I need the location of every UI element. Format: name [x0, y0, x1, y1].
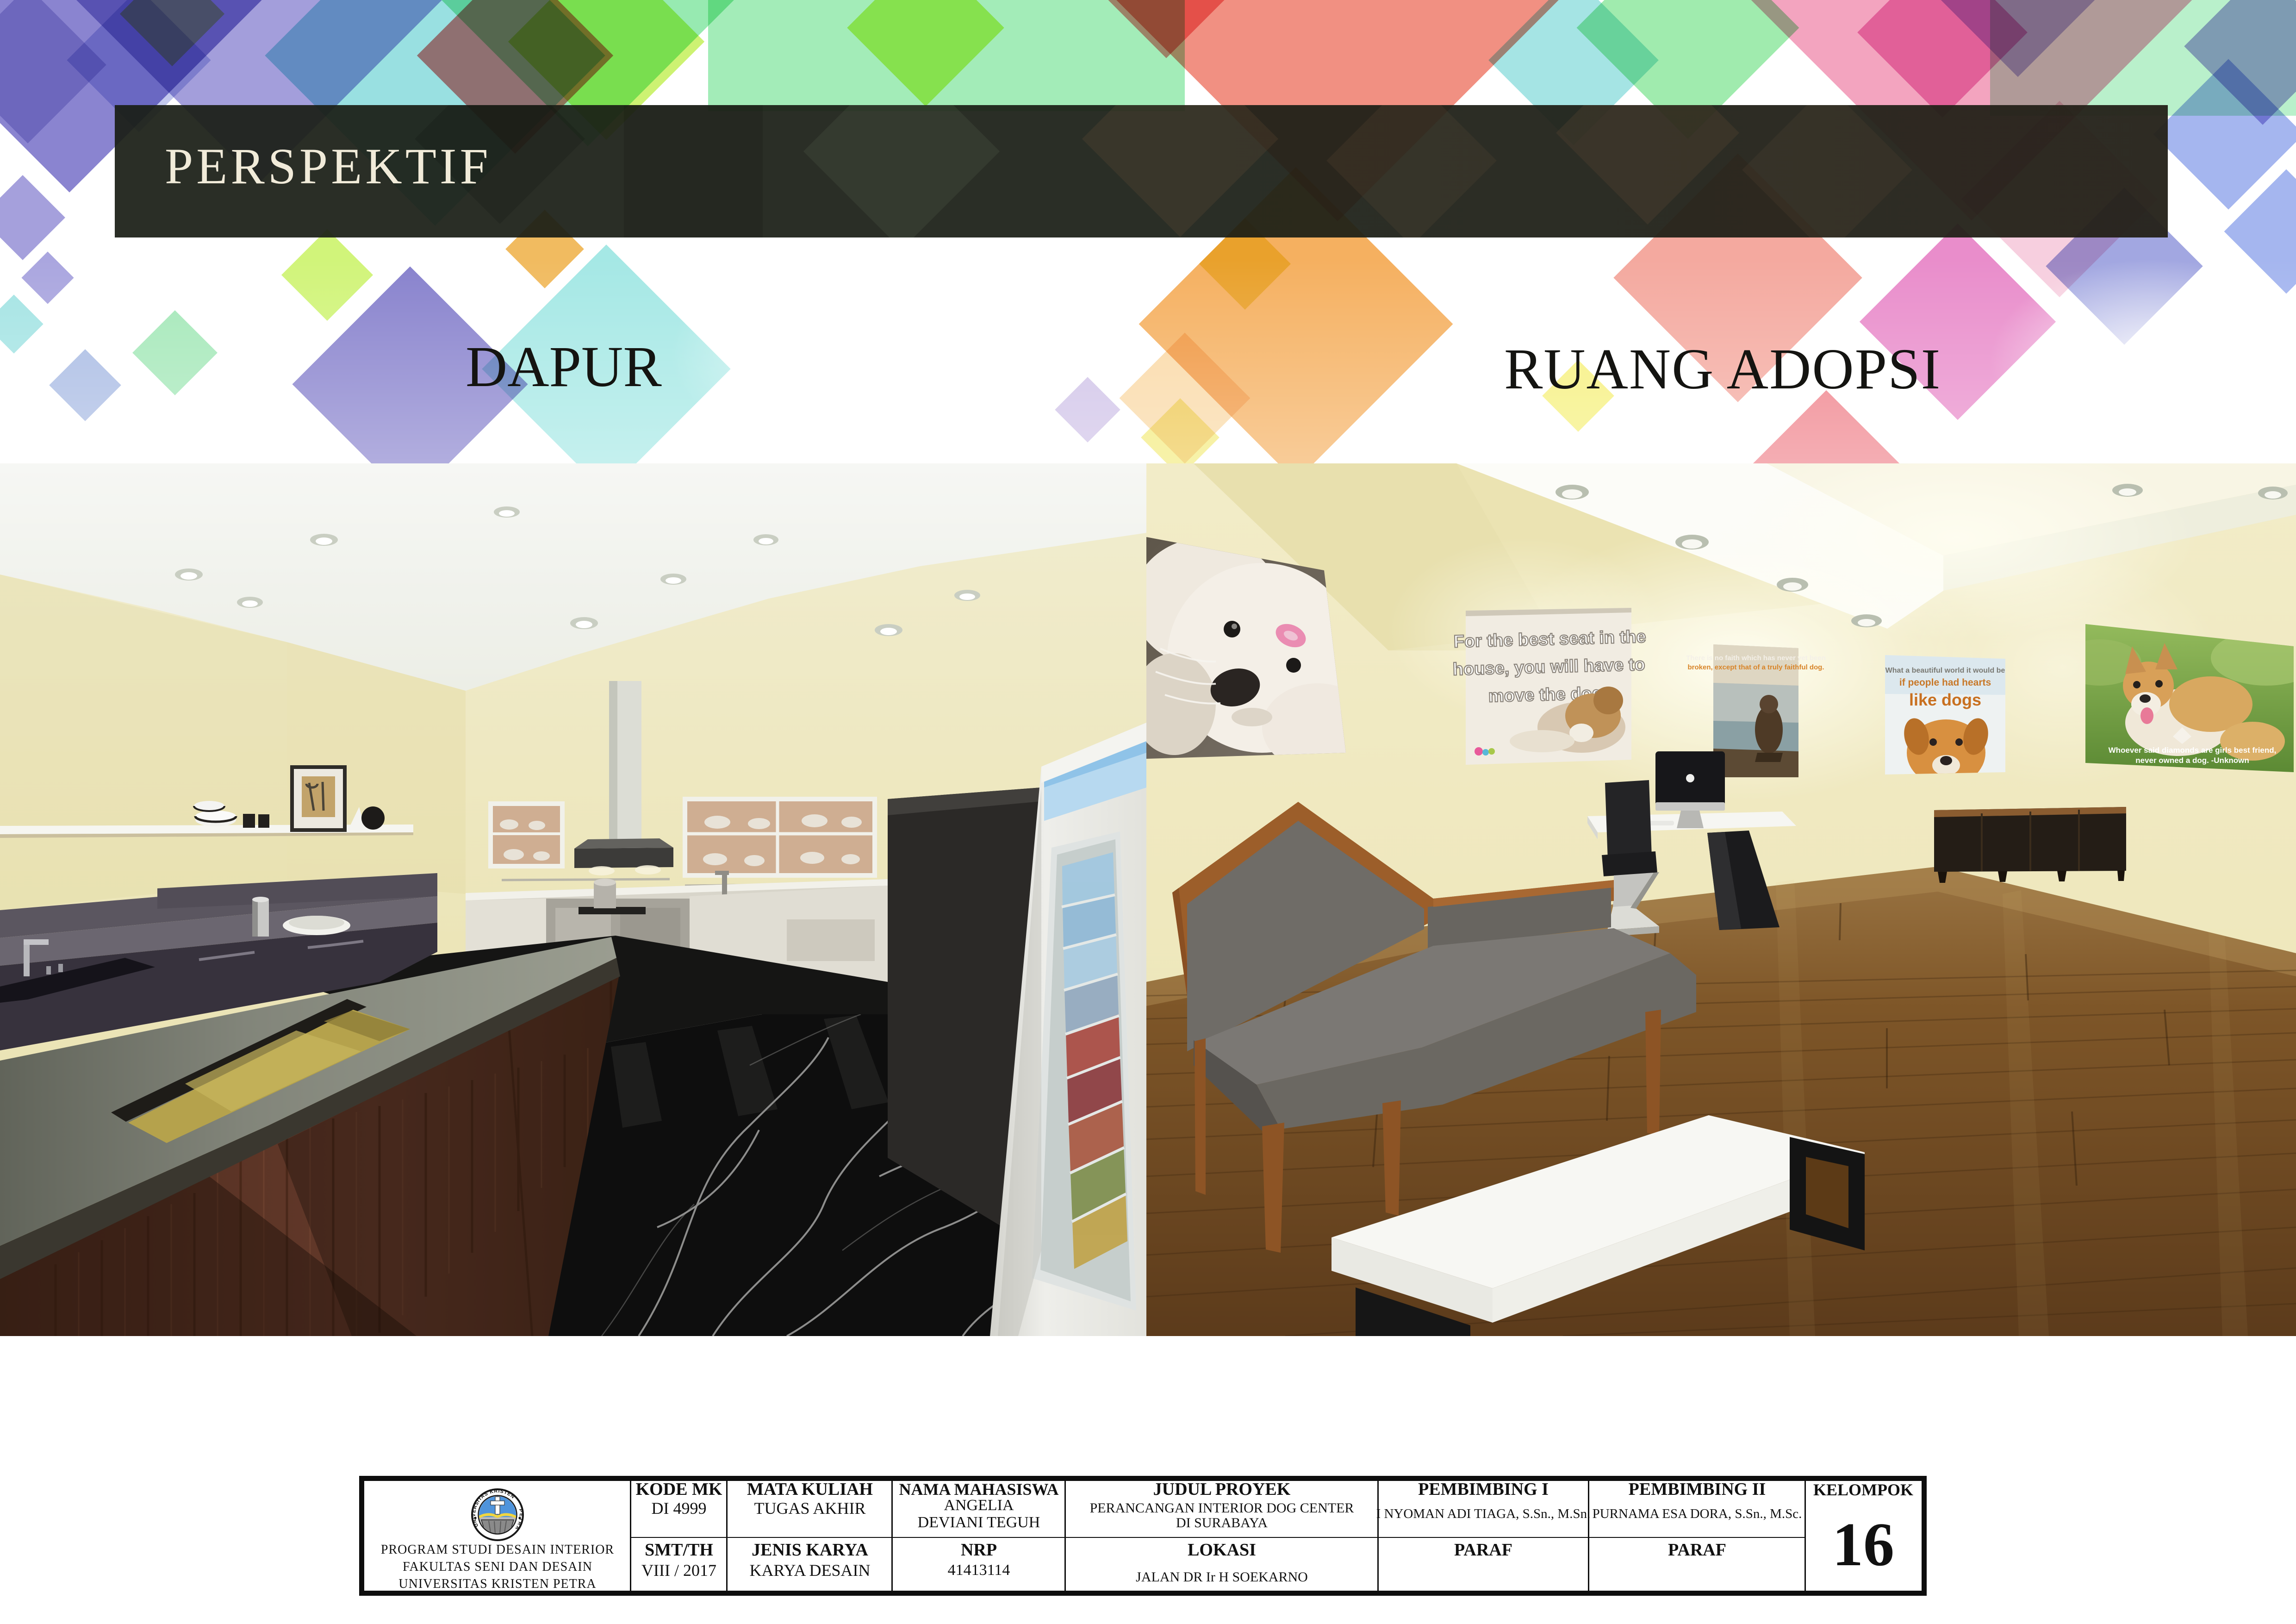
svg-text:broken, except that of a truly: broken, except that of a truly faithful …	[1687, 663, 1824, 671]
svg-text:What a beautiful world it woul: What a beautiful world it would be	[1885, 667, 2005, 675]
svg-text:like dogs: like dogs	[1909, 690, 1981, 709]
svg-text:if people had hearts: if people had hearts	[1899, 677, 1991, 688]
svg-text:Whoever said diamonds are girl: Whoever said diamonds are girls best fri…	[2109, 746, 2277, 755]
svg-text:There is no faith which has ne: There is no faith which has never yet be…	[1686, 654, 1826, 662]
svg-text:never owned a dog. -Unkno: never owned a dog. -Unknown	[2135, 756, 2249, 765]
